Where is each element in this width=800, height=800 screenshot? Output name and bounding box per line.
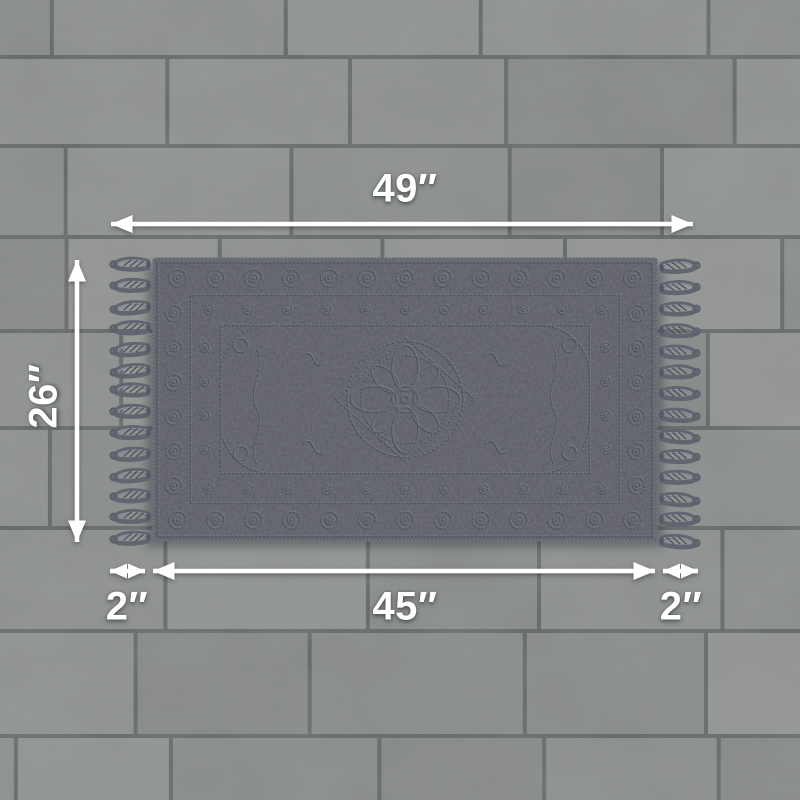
total-width-label: 49″	[372, 167, 437, 212]
rug	[110, 258, 700, 549]
rug-height-label: 26″	[22, 363, 67, 428]
right-fringe-label: 2″	[660, 585, 702, 630]
body-width-label: 45″	[372, 585, 437, 630]
rug-on-tile-graphic	[0, 0, 800, 800]
product-dimension-image: 49″ 26″ 2″ 45″ 2″	[0, 0, 800, 800]
rug-texture-dark	[153, 258, 658, 542]
left-fringe-label: 2″	[106, 585, 148, 630]
